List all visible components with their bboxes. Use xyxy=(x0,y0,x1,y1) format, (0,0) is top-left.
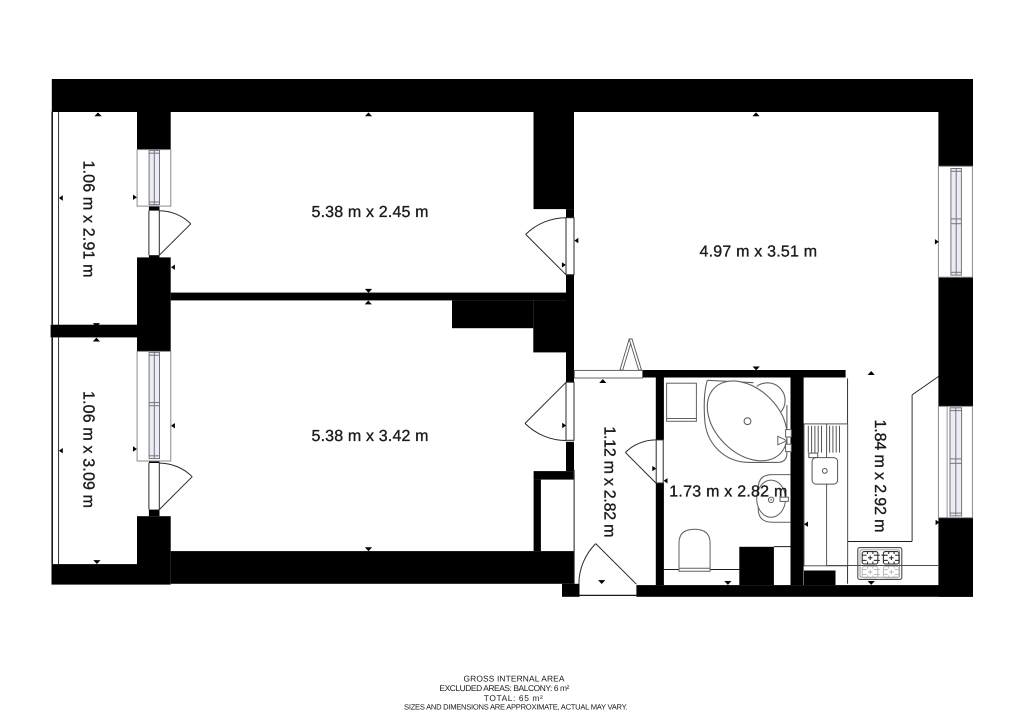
svg-text:EXCLUDED AREAS: BALCONY: 6 m²: EXCLUDED AREAS: BALCONY: 6 m² xyxy=(439,683,569,693)
svg-text:1.73 m x 2.82 m: 1.73 m x 2.82 m xyxy=(669,484,787,501)
svg-text:4.97 m x 3.51 m: 4.97 m x 3.51 m xyxy=(700,243,818,260)
svg-text:1.12 m x 2.82 m: 1.12 m x 2.82 m xyxy=(601,426,618,537)
svg-text:TOTAL: 65 m²: TOTAL: 65 m² xyxy=(484,693,543,703)
svg-text:GROSS INTERNAL AREA: GROSS INTERNAL AREA xyxy=(464,674,565,684)
svg-text:1.06 m x 3.09 m: 1.06 m x 3.09 m xyxy=(80,391,97,508)
svg-text:5.38 m x 3.42 m: 5.38 m x 3.42 m xyxy=(312,428,429,445)
svg-text:SIZES AND DIMENSIONS ARE APPRO: SIZES AND DIMENSIONS ARE APPROXIMATE, AC… xyxy=(404,703,628,712)
svg-text:1.84 m x 2.92 m: 1.84 m x 2.92 m xyxy=(871,420,888,533)
svg-text:5.38 m x 2.45 m: 5.38 m x 2.45 m xyxy=(312,204,429,221)
svg-text:1.06 m x 2.91 m: 1.06 m x 2.91 m xyxy=(80,161,97,278)
